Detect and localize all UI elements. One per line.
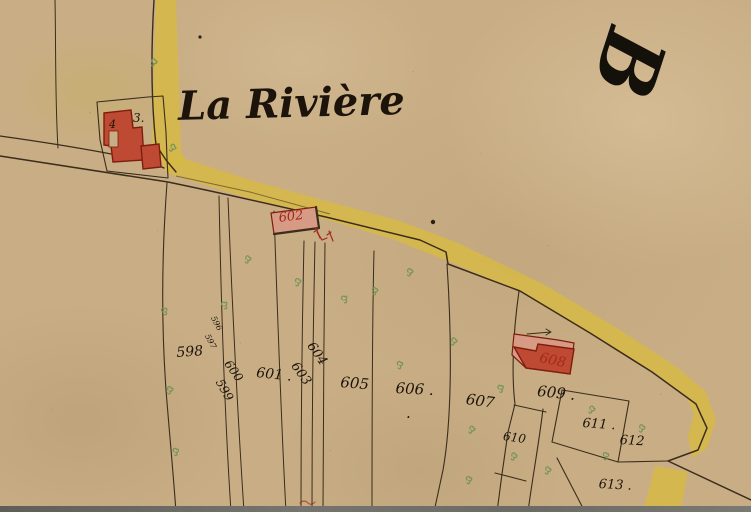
parcel-label-602: 602 bbox=[278, 209, 304, 225]
building-courtyard-notch bbox=[109, 131, 118, 147]
ink-speck bbox=[198, 35, 201, 38]
vegetation-mark-icon bbox=[468, 426, 476, 435]
ink-dot bbox=[431, 220, 435, 224]
vegetation-mark-icon bbox=[466, 476, 471, 483]
parcel-label-607: 607 bbox=[465, 392, 495, 411]
vegetation-mark-icon bbox=[511, 452, 518, 460]
vegetation-mark-icon bbox=[397, 361, 403, 369]
map-canvas[interactable]: La Rivière B 598599600601 .603604605606 … bbox=[0, 0, 751, 512]
vegetation-mark-icon bbox=[451, 337, 458, 345]
parcel-label-601: 601 . bbox=[256, 366, 293, 384]
vegetation-mark-icon bbox=[341, 295, 349, 304]
parcel-label-605: 605 bbox=[340, 375, 370, 392]
parcel-label-598: 598 bbox=[176, 344, 204, 360]
vegetation-mark-icon bbox=[588, 406, 596, 415]
vegetation-mark-icon bbox=[167, 386, 173, 394]
parcel-label-609: 609 . bbox=[536, 384, 576, 403]
place-name-title: La Rivière bbox=[178, 81, 399, 127]
vegetation-mark-icon bbox=[295, 278, 301, 285]
vegetation-mark-icon bbox=[161, 307, 169, 316]
parcel-label-610: 610 bbox=[502, 430, 526, 445]
survey-arrow-icon bbox=[527, 329, 551, 335]
parcel-label-606: 606 . bbox=[395, 381, 434, 398]
vegetation-mark-icon bbox=[407, 268, 413, 276]
vegetation-mark-icon bbox=[173, 448, 180, 456]
vegetation-mark-icon bbox=[245, 255, 252, 263]
vegetation-mark-icon bbox=[497, 384, 504, 393]
vegetation-mark-icon bbox=[639, 424, 646, 432]
vegetation-mark-icon bbox=[372, 288, 377, 295]
vegetation-mark-icon bbox=[545, 466, 552, 474]
scan-edge-bar bbox=[0, 506, 751, 512]
parcel-label-: . bbox=[406, 406, 411, 421]
parcel-label-4: 4 bbox=[109, 119, 116, 130]
road-yellow-diagonal bbox=[158, 150, 716, 512]
parcel-label-612: 612 bbox=[619, 434, 644, 448]
parcel-label-3: 3. bbox=[133, 112, 144, 124]
parcel-label-611: 611 . bbox=[582, 417, 616, 432]
parcel-label-613: 613 . bbox=[598, 478, 632, 493]
red-squiggle-mark bbox=[300, 501, 315, 504]
building-small bbox=[141, 144, 161, 169]
